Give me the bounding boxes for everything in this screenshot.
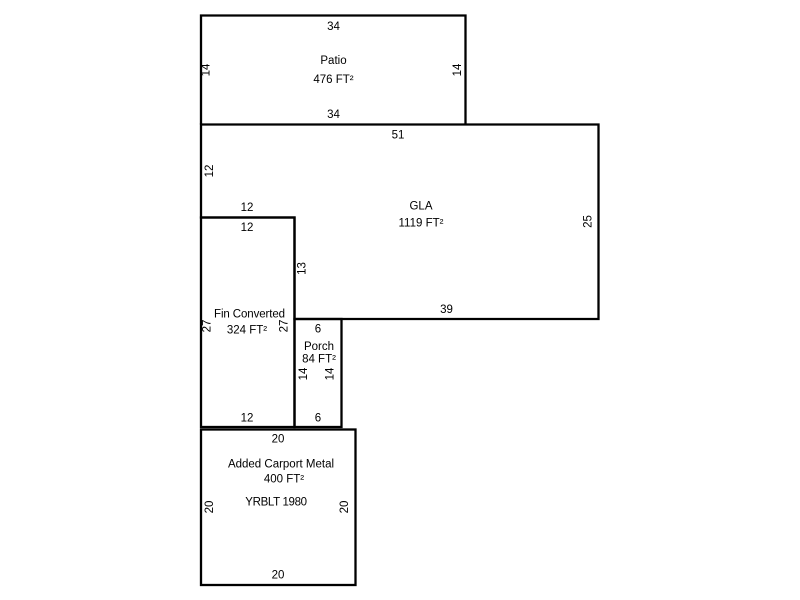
svg-text:6: 6	[315, 324, 321, 336]
svg-text:13: 13	[297, 262, 309, 275]
svg-text:400 FT²: 400 FT²	[264, 474, 304, 486]
svg-text:12: 12	[241, 413, 254, 425]
svg-text:20: 20	[204, 501, 216, 514]
svg-text:27: 27	[202, 320, 214, 333]
svg-text:12: 12	[204, 165, 216, 178]
svg-text:84 FT²: 84 FT²	[302, 354, 336, 366]
svg-text:1119 FT²: 1119 FT²	[399, 218, 444, 230]
svg-text:Added Carport Metal: Added Carport Metal	[228, 459, 334, 471]
svg-text:14: 14	[325, 367, 337, 380]
svg-text:12: 12	[241, 222, 254, 234]
svg-text:20: 20	[272, 434, 285, 446]
svg-text:14: 14	[201, 63, 213, 76]
svg-text:Fin Converted: Fin Converted	[214, 309, 285, 321]
svg-text:476 FT²: 476 FT²	[313, 74, 353, 86]
svg-text:GLA: GLA	[409, 201, 432, 213]
svg-text:YRBLT 1980: YRBLT 1980	[245, 497, 306, 509]
svg-text:51: 51	[392, 130, 405, 142]
svg-text:12: 12	[241, 202, 254, 214]
svg-text:324 FT²: 324 FT²	[227, 325, 267, 337]
svg-text:14: 14	[452, 63, 464, 76]
svg-text:20: 20	[339, 501, 351, 514]
svg-text:14: 14	[298, 367, 310, 380]
svg-text:Porch: Porch	[304, 341, 334, 353]
svg-text:Patio: Patio	[320, 55, 346, 67]
svg-text:20: 20	[272, 570, 285, 582]
svg-text:39: 39	[440, 304, 453, 316]
svg-text:34: 34	[327, 109, 340, 121]
svg-text:6: 6	[315, 413, 321, 425]
svg-text:25: 25	[583, 215, 595, 228]
svg-text:34: 34	[327, 21, 340, 33]
svg-text:27: 27	[279, 320, 291, 333]
